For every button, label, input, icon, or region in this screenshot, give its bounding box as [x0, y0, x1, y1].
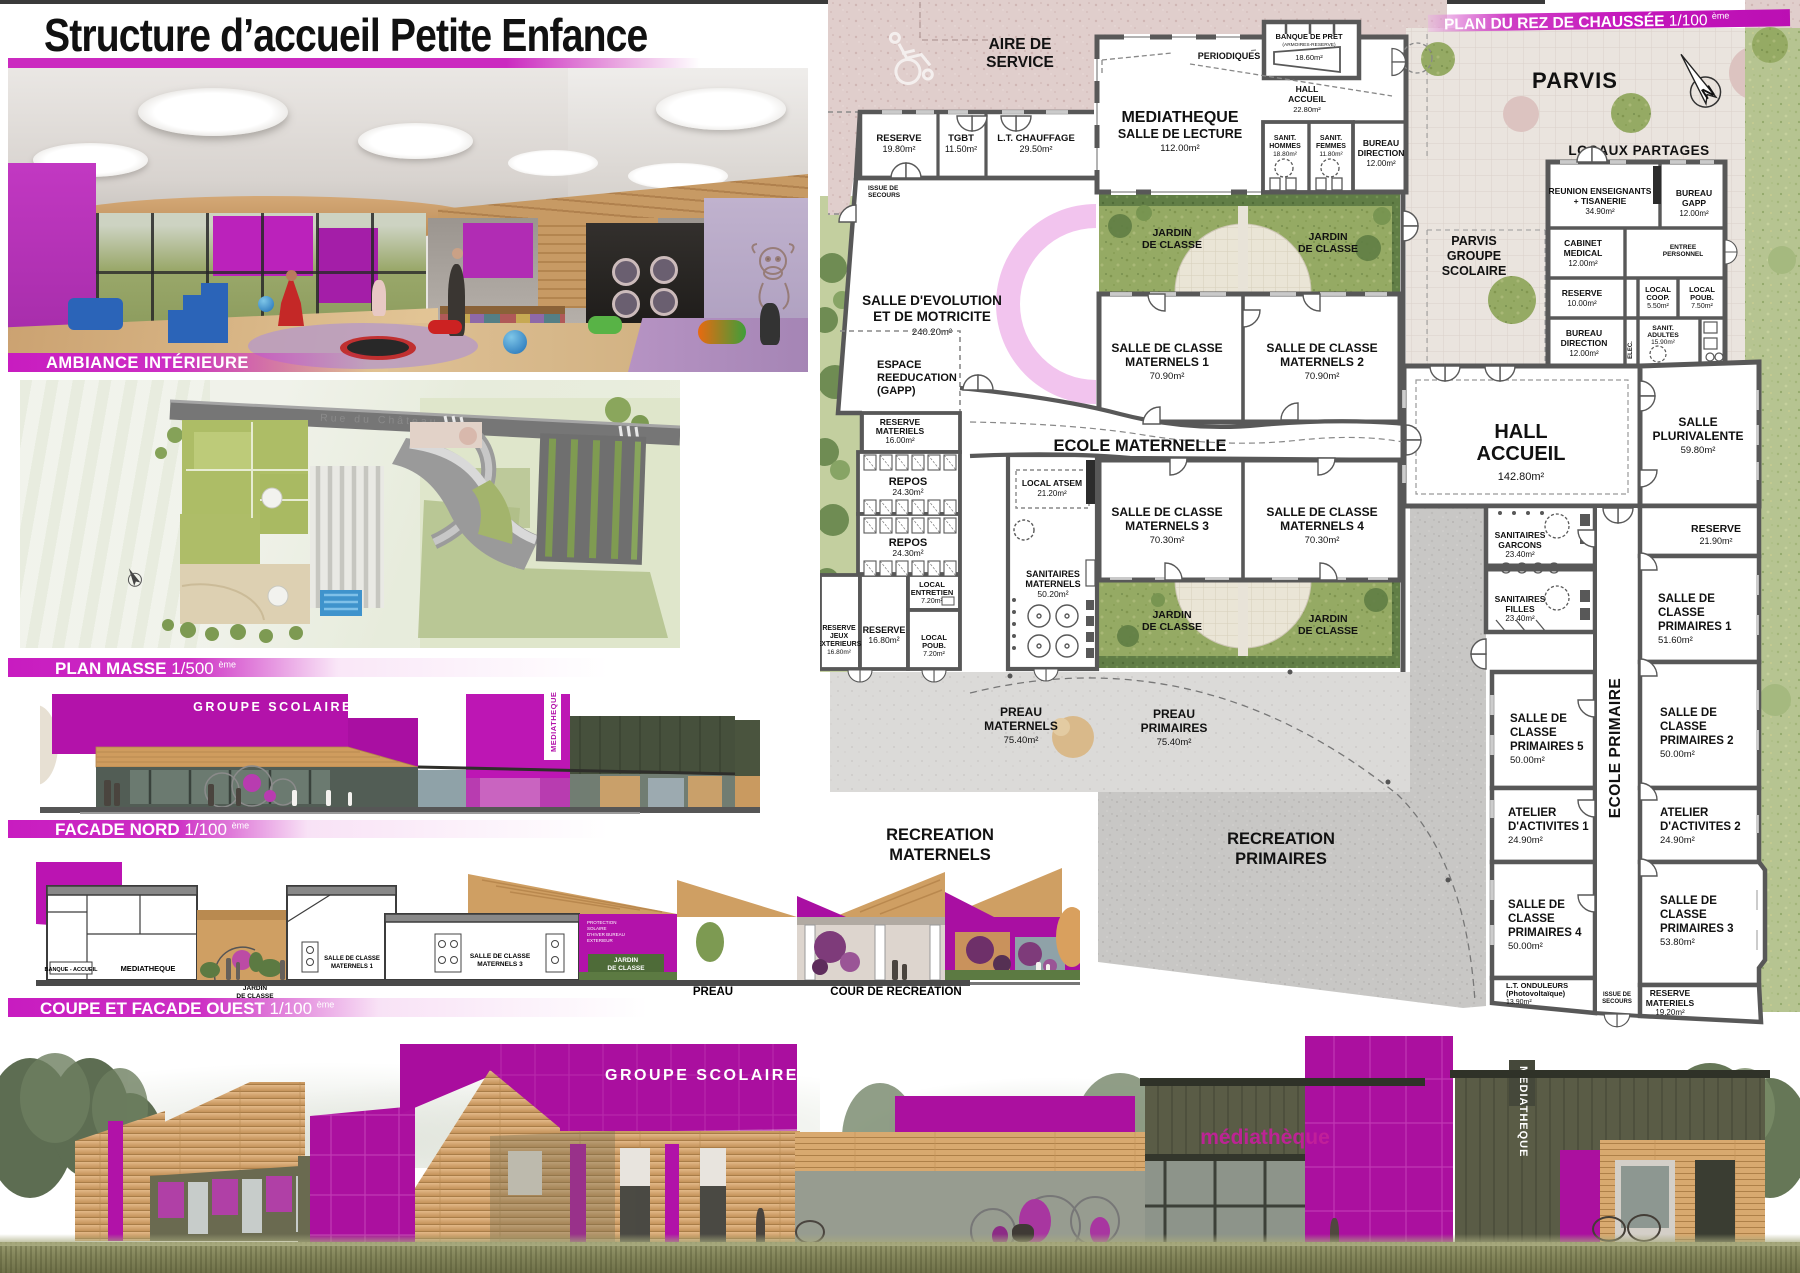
svg-text:DIRECTION: DIRECTION [1358, 148, 1405, 158]
svg-text:SALLE DE LECTURE: SALLE DE LECTURE [1118, 127, 1242, 141]
svg-text:EXTERIEURS: EXTERIEURS [820, 641, 862, 648]
svg-text:11.80m²: 11.80m² [1319, 151, 1343, 158]
svg-text:MATERNELS 1: MATERNELS 1 [331, 964, 374, 970]
svg-text:7.20m²: 7.20m² [923, 651, 945, 658]
svg-text:70.30m²: 70.30m² [1150, 535, 1185, 546]
svg-text:PREAU: PREAU [1153, 707, 1195, 721]
svg-text:SECOURS: SECOURS [1602, 999, 1632, 1005]
svg-text:SALLE DE CLASSE: SALLE DE CLASSE [324, 956, 380, 962]
svg-text:SALLE DE: SALLE DE [1510, 713, 1567, 725]
svg-text:SALLE DE CLASSE: SALLE DE CLASSE [470, 953, 531, 960]
svg-text:CLASSE: CLASSE [1508, 913, 1555, 925]
svg-text:13.90m²: 13.90m² [1506, 999, 1532, 1006]
svg-text:MATERNELS: MATERNELS [1025, 579, 1080, 589]
svg-text:50.00m²: 50.00m² [1510, 755, 1545, 766]
svg-text:34.90m²: 34.90m² [1585, 207, 1615, 216]
svg-text:50.00m²: 50.00m² [1508, 941, 1543, 952]
svg-text:ET DE MOTRICITE: ET DE MOTRICITE [873, 309, 991, 324]
svg-text:ENTREE: ENTREE [1670, 244, 1697, 251]
svg-text:50.00m²: 50.00m² [1660, 749, 1695, 760]
svg-text:PRIMAIRES 5: PRIMAIRES 5 [1510, 741, 1584, 753]
svg-text:PROTECTION: PROTECTION [587, 920, 617, 925]
svg-text:BUREAU: BUREAU [1676, 188, 1712, 198]
svg-text:CLASSE: CLASSE [1660, 909, 1707, 921]
svg-text:24.30m²: 24.30m² [892, 548, 923, 558]
svg-text:HALL: HALL [1296, 84, 1319, 94]
svg-text:D'HIVER BUREAU: D'HIVER BUREAU [587, 932, 625, 937]
svg-text:24.90m²: 24.90m² [1508, 835, 1543, 846]
svg-text:CLASSE: CLASSE [1658, 607, 1705, 619]
svg-text:MATERNELS 4: MATERNELS 4 [1280, 519, 1364, 533]
svg-text:12.00m²: 12.00m² [1366, 159, 1396, 168]
svg-text:MEDIATHEQUE: MEDIATHEQUE [121, 964, 176, 973]
svg-text:16.80m²: 16.80m² [868, 635, 899, 645]
svg-text:ISSUE DE: ISSUE DE [1603, 992, 1631, 998]
svg-text:RESERVE: RESERVE [863, 625, 906, 635]
svg-text:CLASSE: CLASSE [1660, 721, 1707, 733]
svg-text:MATERNELS 3: MATERNELS 3 [1125, 519, 1209, 533]
svg-text:ECOLE MATERNELLE: ECOLE MATERNELLE [1054, 437, 1227, 455]
svg-text:51.60m²: 51.60m² [1658, 635, 1693, 646]
svg-text:+ TISANERIE: + TISANERIE [1574, 196, 1627, 206]
svg-text:FILLES: FILLES [1505, 604, 1535, 614]
svg-text:RECREATION: RECREATION [886, 826, 994, 844]
svg-text:COOP.: COOP. [1646, 293, 1669, 302]
svg-text:JARDIN: JARDIN [1152, 609, 1191, 621]
svg-text:ATELIER: ATELIER [1508, 807, 1557, 819]
svg-text:JARDIN: JARDIN [1308, 231, 1347, 243]
svg-text:29.50m²: 29.50m² [1019, 144, 1052, 154]
svg-text:JARDIN: JARDIN [243, 985, 268, 992]
svg-text:7.20m²: 7.20m² [921, 598, 943, 605]
svg-text:SALLE: SALLE [1678, 415, 1717, 429]
svg-text:RESERVE: RESERVE [1562, 288, 1603, 298]
svg-text:21.20m²: 21.20m² [1037, 489, 1067, 498]
svg-text:SANITAIRES: SANITAIRES [1026, 569, 1080, 579]
svg-text:PERIODIQUES: PERIODIQUES [1198, 51, 1261, 61]
svg-text:AIRE DE: AIRE DE [989, 36, 1052, 53]
svg-text:GROUPE SCOLAIRE: GROUPE SCOLAIRE [193, 700, 353, 714]
svg-text:MEDIATHEQUE: MEDIATHEQUE [1121, 109, 1238, 126]
svg-text:FEMMES: FEMMES [1316, 143, 1346, 150]
svg-text:(ARMOIRES-RESERVE): (ARMOIRES-RESERVE) [1282, 42, 1336, 48]
svg-text:EXTERIEUR: EXTERIEUR [587, 938, 614, 943]
svg-text:RESERVE: RESERVE [876, 133, 921, 144]
svg-text:SALLE DE: SALLE DE [1508, 899, 1565, 911]
svg-text:SALLE DE: SALLE DE [1660, 895, 1717, 907]
svg-text:5.50m²: 5.50m² [1647, 303, 1669, 310]
svg-text:DE CLASSE: DE CLASSE [1142, 621, 1202, 633]
svg-text:SALLE DE CLASSE: SALLE DE CLASSE [1111, 505, 1222, 519]
svg-text:L.T. CHAUFFAGE: L.T. CHAUFFAGE [997, 133, 1075, 144]
svg-text:ACCUEIL: ACCUEIL [1477, 443, 1566, 465]
svg-text:BANQUE - ACCUEIL: BANQUE - ACCUEIL [45, 967, 99, 973]
svg-text:RESERVE: RESERVE [822, 625, 856, 632]
svg-text:23.40m²: 23.40m² [1505, 550, 1535, 559]
svg-text:CABINET: CABINET [1564, 238, 1603, 248]
svg-text:PRIMAIRES 2: PRIMAIRES 2 [1660, 735, 1734, 747]
svg-text:12.00m²: 12.00m² [1679, 209, 1709, 218]
svg-text:REEDUCATION: REEDUCATION [877, 372, 957, 384]
svg-text:24.90m²: 24.90m² [1660, 835, 1695, 846]
svg-text:GROUPE SCOLAIRE: GROUPE SCOLAIRE [605, 1067, 799, 1084]
svg-text:PRIMAIRES: PRIMAIRES [1235, 850, 1327, 868]
svg-text:ENTRETIEN: ENTRETIEN [911, 588, 954, 597]
svg-text:GROUPE: GROUPE [1447, 249, 1501, 263]
svg-text:12.00m²: 12.00m² [1568, 259, 1598, 268]
svg-text:53.80m²: 53.80m² [1660, 937, 1695, 948]
svg-text:(Photovoltaïque): (Photovoltaïque) [1506, 989, 1566, 998]
svg-text:DE CLASSE: DE CLASSE [1142, 239, 1202, 251]
svg-text:SALLE D'EVOLUTION: SALLE D'EVOLUTION [862, 293, 1002, 308]
svg-text:SALLE DE: SALLE DE [1658, 593, 1715, 605]
svg-text:SCOLAIRE: SCOLAIRE [1442, 264, 1507, 278]
svg-text:75.40m²: 75.40m² [1157, 737, 1192, 748]
svg-text:MATERNELS: MATERNELS [889, 846, 990, 864]
svg-text:22.80m²: 22.80m² [1293, 105, 1321, 114]
svg-text:19.80m²: 19.80m² [882, 144, 915, 154]
svg-text:BUREAU: BUREAU [1566, 328, 1602, 338]
svg-text:JEUX: JEUX [830, 633, 849, 640]
svg-text:GAPP: GAPP [1682, 198, 1706, 208]
svg-text:MATERNELS 3: MATERNELS 3 [477, 961, 523, 968]
svg-text:SANIT.: SANIT. [1320, 135, 1342, 142]
svg-text:142.80m²: 142.80m² [1498, 471, 1545, 483]
svg-text:16.80m²: 16.80m² [827, 649, 852, 656]
svg-text:SANIT.: SANIT. [1652, 325, 1674, 332]
svg-text:HOMMES: HOMMES [1269, 143, 1301, 150]
svg-text:11.50m²: 11.50m² [945, 144, 977, 154]
svg-text:SALLE DE CLASSE: SALLE DE CLASSE [1111, 341, 1222, 355]
svg-text:18.80m²: 18.80m² [1273, 151, 1298, 158]
svg-text:PARVIS: PARVIS [1532, 68, 1618, 93]
svg-text:REUNION ENSEIGNANTS: REUNION ENSEIGNANTS [1549, 186, 1652, 196]
svg-text:(GAPP): (GAPP) [877, 385, 916, 397]
svg-text:MATERNELS 2: MATERNELS 2 [1280, 355, 1364, 369]
svg-text:MEDICAL: MEDICAL [1564, 248, 1603, 258]
svg-text:16.00m²: 16.00m² [885, 436, 915, 445]
svg-text:SALLE DE: SALLE DE [1660, 707, 1717, 719]
svg-text:18.60m²: 18.60m² [1295, 53, 1323, 62]
svg-text:ESPACE: ESPACE [877, 359, 921, 371]
svg-text:PREAU: PREAU [693, 986, 733, 998]
svg-text:240.20m²: 240.20m² [912, 327, 952, 338]
svg-text:TGBT: TGBT [948, 133, 974, 144]
svg-text:70.30m²: 70.30m² [1305, 535, 1340, 546]
svg-text:BUREAU: BUREAU [1363, 138, 1399, 148]
svg-text:PERSONNEL: PERSONNEL [1663, 251, 1703, 258]
svg-text:POUB.: POUB. [1690, 293, 1714, 302]
svg-text:112.00m²: 112.00m² [1160, 143, 1199, 154]
svg-text:PRIMAIRES: PRIMAIRES [1141, 721, 1208, 735]
svg-text:BANQUE DE PRET: BANQUE DE PRET [1275, 32, 1343, 41]
svg-text:10.00m²: 10.00m² [1567, 299, 1597, 308]
svg-text:médiathèque: médiathèque [1200, 1126, 1330, 1149]
svg-text:ELEC.: ELEC. [1628, 341, 1634, 359]
svg-text:24.30m²: 24.30m² [892, 487, 923, 497]
svg-text:PRIMAIRES 1: PRIMAIRES 1 [1658, 621, 1732, 633]
svg-text:GARCONS: GARCONS [1498, 540, 1542, 550]
svg-text:12.00m²: 12.00m² [1569, 349, 1599, 358]
svg-text:SALLE DE CLASSE: SALLE DE CLASSE [1266, 505, 1377, 519]
svg-text:PREAU: PREAU [1000, 705, 1042, 719]
svg-text:HALL: HALL [1494, 421, 1547, 443]
svg-text:21.90m²: 21.90m² [1699, 536, 1732, 546]
svg-text:SANITAIRES: SANITAIRES [1495, 594, 1546, 604]
svg-text:RESERVE: RESERVE [1691, 523, 1741, 535]
svg-text:LOCAL ATSEM: LOCAL ATSEM [1022, 478, 1082, 488]
svg-text:SANITAIRES: SANITAIRES [1495, 530, 1546, 540]
svg-text:PRIMAIRES 4: PRIMAIRES 4 [1508, 927, 1582, 939]
svg-text:RESERVE: RESERVE [1650, 988, 1691, 998]
svg-text:PLURIVALENTE: PLURIVALENTE [1652, 429, 1743, 443]
svg-text:23.40m²: 23.40m² [1505, 614, 1535, 623]
svg-text:D'ACTIVITES 1: D'ACTIVITES 1 [1508, 821, 1589, 833]
svg-text:75.40m²: 75.40m² [1004, 735, 1039, 746]
svg-text:JARDIN: JARDIN [1152, 227, 1191, 239]
svg-text:SECOURS: SECOURS [868, 192, 901, 199]
svg-text:SERVICE: SERVICE [986, 54, 1054, 71]
svg-text:POUB.: POUB. [922, 641, 946, 650]
svg-text:D'ACTIVITES 2: D'ACTIVITES 2 [1660, 821, 1741, 833]
svg-text:JARDIN: JARDIN [1308, 613, 1347, 625]
svg-text:59.80m²: 59.80m² [1681, 445, 1716, 456]
svg-text:ATELIER: ATELIER [1660, 807, 1709, 819]
svg-text:MATERNELS 1: MATERNELS 1 [1125, 355, 1209, 369]
svg-text:SANIT.: SANIT. [1274, 135, 1296, 142]
svg-text:ECOLE PRIMAIRE: ECOLE PRIMAIRE [1607, 678, 1624, 818]
svg-text:PARVIS: PARVIS [1451, 234, 1496, 248]
svg-text:MATERIELS: MATERIELS [876, 426, 925, 436]
svg-text:ISSUE DE: ISSUE DE [868, 185, 899, 192]
svg-text:DE CLASSE: DE CLASSE [607, 965, 645, 972]
svg-text:DIRECTION: DIRECTION [1561, 338, 1608, 348]
svg-text:SOLAIRE: SOLAIRE [587, 926, 607, 931]
svg-text:DE CLASSE: DE CLASSE [1298, 243, 1358, 255]
svg-text:70.90m²: 70.90m² [1305, 371, 1340, 382]
svg-text:SALLE DE CLASSE: SALLE DE CLASSE [1266, 341, 1377, 355]
svg-text:ACCUEIL: ACCUEIL [1288, 94, 1326, 104]
svg-text:ADULTES: ADULTES [1647, 332, 1679, 339]
svg-text:MATERNELS: MATERNELS [984, 719, 1058, 733]
svg-text:MATERIELS: MATERIELS [1646, 998, 1695, 1008]
svg-text:MEDIATHEQUE: MEDIATHEQUE [549, 692, 558, 752]
svg-text:19.20m²: 19.20m² [1655, 1008, 1685, 1017]
svg-text:PRIMAIRES 3: PRIMAIRES 3 [1660, 923, 1734, 935]
svg-text:15.90m²: 15.90m² [1651, 339, 1676, 346]
svg-text:CLASSE: CLASSE [1510, 727, 1557, 739]
svg-text:DE CLASSE: DE CLASSE [1298, 625, 1358, 637]
svg-text:50.20m²: 50.20m² [1037, 589, 1068, 599]
svg-text:JARDIN: JARDIN [614, 957, 639, 964]
svg-text:7.50m²: 7.50m² [1691, 303, 1713, 310]
svg-text:70.90m²: 70.90m² [1150, 371, 1185, 382]
svg-text:RECREATION: RECREATION [1227, 830, 1335, 848]
svg-text:MEDIATHEQUE: MEDIATHEQUE [1517, 1066, 1529, 1157]
